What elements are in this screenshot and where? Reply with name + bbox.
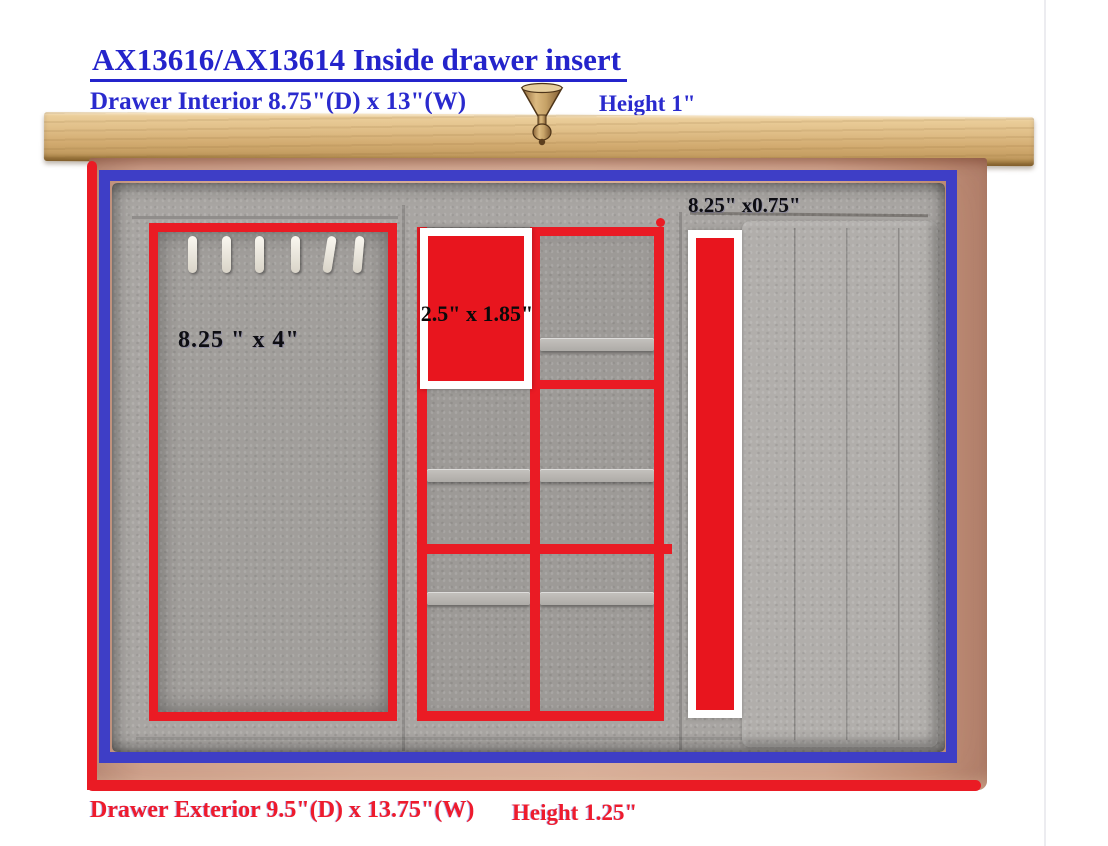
exterior-outline-left <box>87 161 97 790</box>
red-dot-marker <box>656 218 665 227</box>
left-panel-dimensions-label: 8.25 " x 4" <box>178 327 300 354</box>
exterior-dimensions-label: Drawer Exterior 9.5"(D) x 13.75"(W) <box>90 797 474 824</box>
right-slot-fill <box>696 238 734 710</box>
compartment-shelf <box>427 469 530 482</box>
product-annotation-image: AX13616/AX13614 Inside drawer insert Dra… <box>0 0 1108 846</box>
hook-pin <box>222 236 231 273</box>
tray-seam-left <box>402 205 405 751</box>
velvet-rim-seam <box>132 216 398 219</box>
drawer-knob-icon <box>519 82 565 146</box>
compartment-shelf <box>540 338 654 351</box>
pad-seam <box>898 228 901 740</box>
hook-pin <box>255 236 264 273</box>
pad-seam <box>794 228 797 740</box>
compartment-shelf <box>427 592 530 605</box>
red-grid-line-horizontal <box>417 711 664 721</box>
left-hook-compartment-outline <box>149 223 397 721</box>
compartment-shelf <box>540 592 654 605</box>
hook-pin <box>188 236 197 273</box>
red-grid-line-vertical <box>654 227 664 721</box>
compartment-shelf <box>540 469 654 482</box>
right-slot-dimensions-label: 8.25" x0.75" <box>688 193 801 218</box>
interior-height-label: Height 1" <box>599 91 695 117</box>
hook-pin <box>291 236 300 273</box>
tray-seam-right <box>679 212 682 750</box>
pad-seam <box>846 228 849 740</box>
necklace-pad <box>742 221 938 747</box>
red-grid-line-horizontal <box>417 544 672 554</box>
photo-edge-line <box>1044 0 1046 846</box>
exterior-outline-bottom <box>87 780 981 791</box>
red-grid-line-horizontal <box>530 227 664 236</box>
page-title-text: AX13616/AX13614 Inside drawer insert <box>90 42 627 82</box>
red-grid-line-horizontal <box>530 380 664 389</box>
page-title: AX13616/AX13614 Inside drawer insert <box>90 42 627 82</box>
middle-cell-dimensions-label: 2.5" x 1.85" <box>413 301 541 327</box>
exterior-height-label: Height 1.25" <box>512 800 637 826</box>
